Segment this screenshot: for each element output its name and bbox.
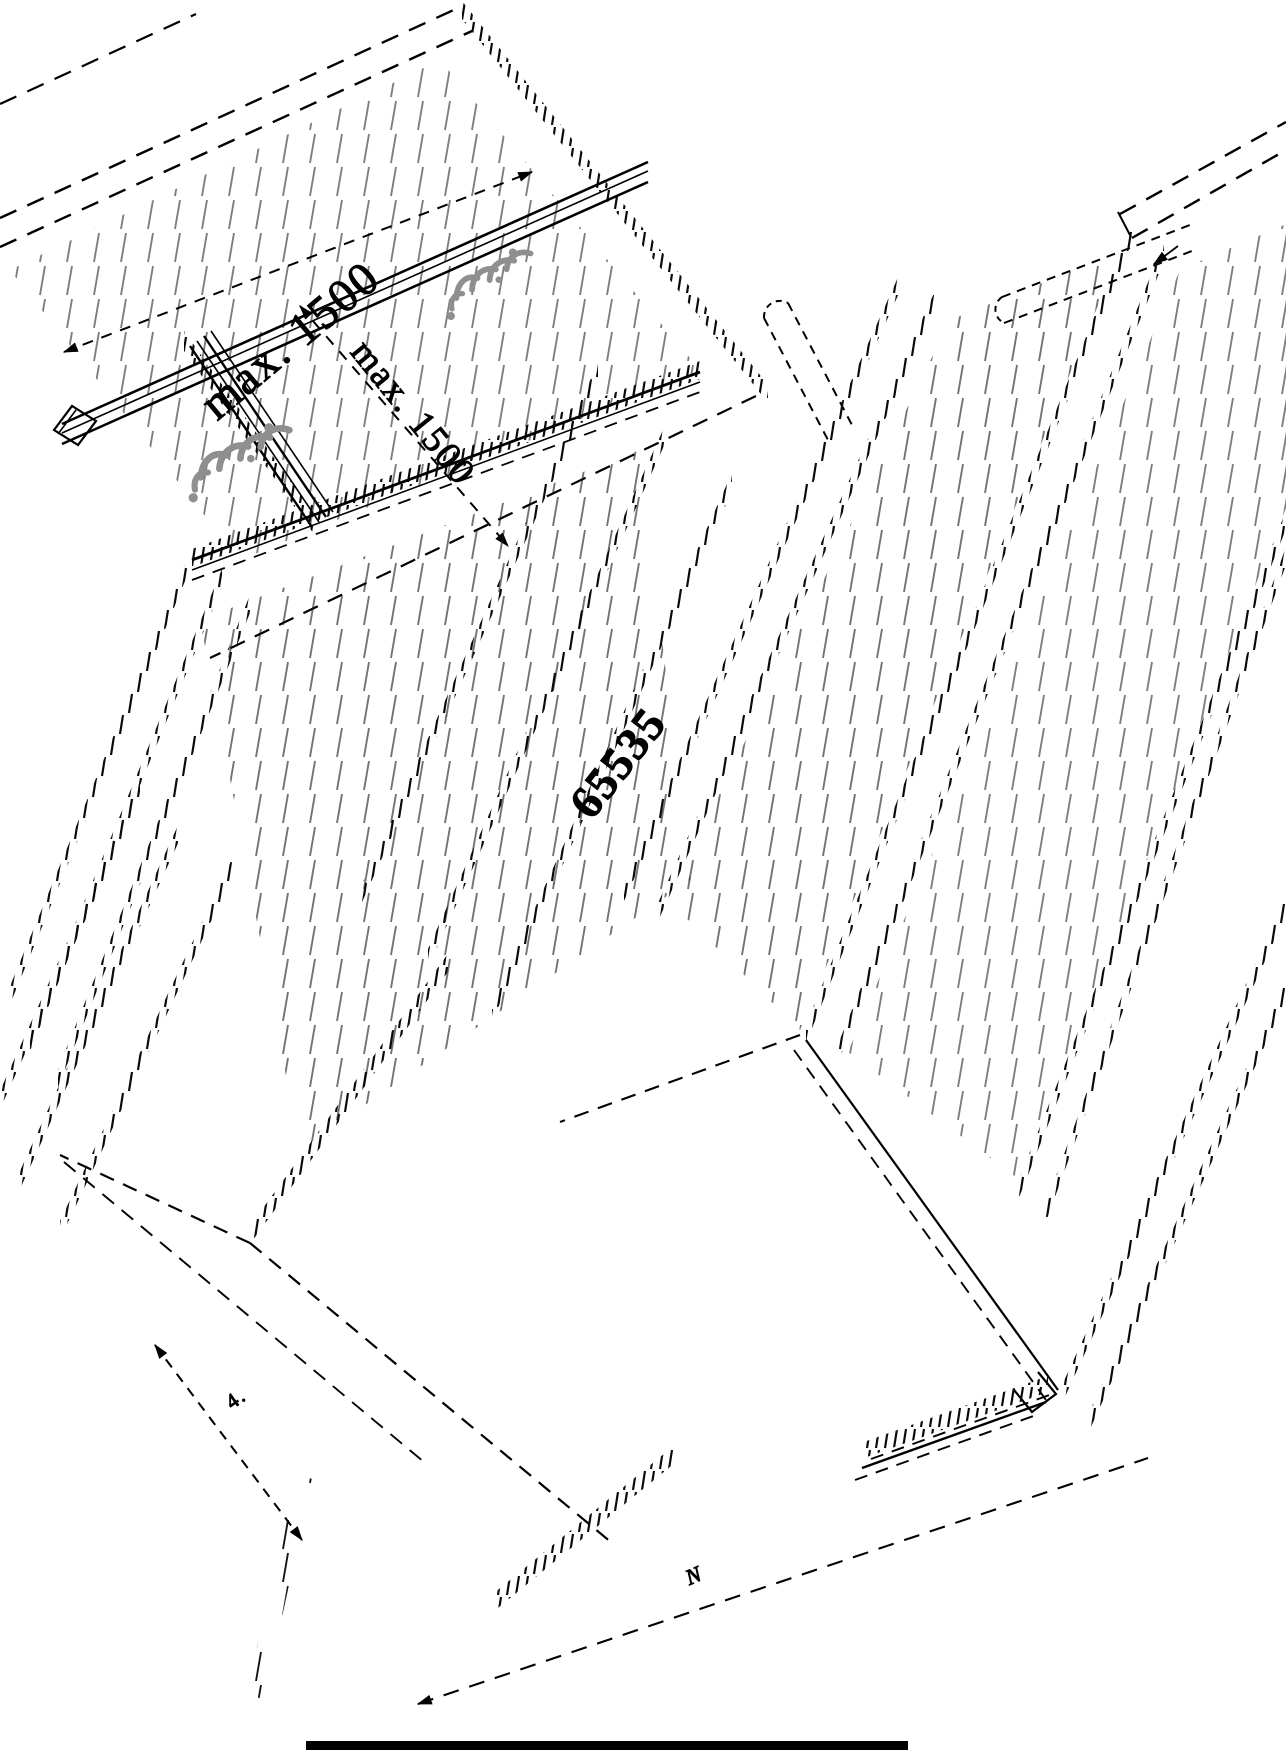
scan-artifact-bar xyxy=(306,1741,908,1750)
hatched-board-edge xyxy=(493,1444,676,1612)
isometric-assembly-drawing: max. 1500 max. 1500 4. 65535 xyxy=(0,0,1286,1750)
hatched-board-edge xyxy=(864,1376,1048,1458)
dimension-label-board-length: N xyxy=(681,1560,707,1590)
dimension-line-board-width xyxy=(155,1345,302,1540)
hatched-board-edge xyxy=(1090,981,1286,1429)
board-face-hatching xyxy=(247,1472,312,1700)
hatched-board-edge xyxy=(8,551,190,1009)
hidden-edge-line xyxy=(560,1035,800,1122)
hidden-edge-line xyxy=(64,1162,424,1462)
hidden-edge-line xyxy=(60,1155,250,1243)
middle-board-group: 4. xyxy=(0,361,700,1700)
hatched-board-edge xyxy=(0,781,140,1109)
dimension-label-board-width: 4. xyxy=(221,1383,251,1414)
hidden-edge-line xyxy=(1120,122,1286,214)
hidden-edge-line xyxy=(0,14,196,104)
technical-drawing-page: max. 1500 max. 1500 4. 65535 xyxy=(0,0,1286,1750)
